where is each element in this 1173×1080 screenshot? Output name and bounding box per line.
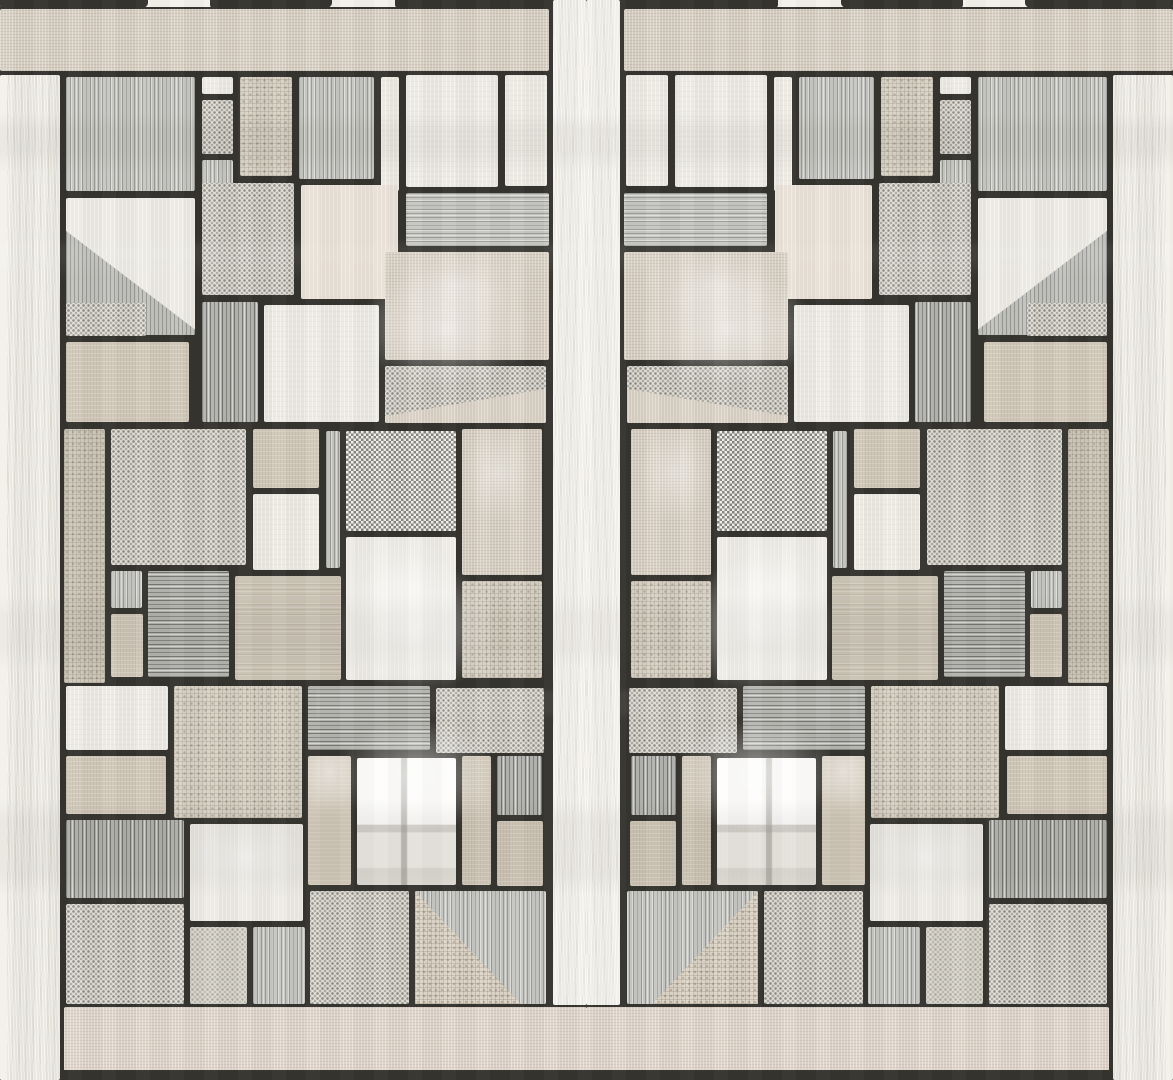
fabric-patch-white [505,75,547,186]
fabric-patch-linen [0,9,549,71]
fabric-patch-taupeGlow [822,756,865,885]
fabric-patch-gvert [253,927,305,1004]
fabric-patch-whitewarm [301,185,398,299]
fabric-patch-dot [764,891,863,1004]
fabric-patch-white [675,75,767,187]
fabric-patch-dot [989,904,1107,1004]
fabric-patch-gvertD [497,756,542,815]
fabric-patch-taupe2 [235,576,341,680]
fabric-patch-taupe [66,756,166,814]
fabric-patch-taupe [1030,614,1062,677]
fabric-patch-burlap2 [64,429,105,683]
fabric-patch-dot [629,688,737,753]
fabric-patch-white [253,494,319,570]
fabric-patch-ghorizD [148,571,229,677]
fabric-patch-white [66,686,168,750]
fabric-patch-taupe [630,821,676,886]
curtain-fabric-photo [0,0,1173,1080]
fabric-patch-pinklinen [64,1007,587,1071]
fabric-patch-dot [202,100,233,154]
fabric-patch-whiteGlow [346,537,456,680]
fabric-patch-linenGlow [624,252,788,360]
fabric-patch-burlap [871,686,999,818]
fabric-patch-gvertD [631,756,676,815]
fabric-patch-seam [0,0,148,9]
fabric-patch-taupe [253,429,319,488]
fabric-patch-white [854,494,920,570]
fabric-patch-taupe [854,429,920,488]
fabric-patch-gauzeB [586,0,620,1005]
fabric-patch-burlap [631,581,711,678]
fabric-patch-dot [1027,303,1107,336]
fabric-patch-linenGlow [385,252,549,360]
fabric-patch-white [202,77,233,94]
fabric-patch-burlap [240,77,292,176]
fabric-patch-dotlight [190,927,247,1004]
fabric-patch-gvert [868,927,920,1004]
fabric-patch-taupe [462,756,491,885]
fabric-patch-dot [111,429,246,565]
fabric-patch-gvert [1031,571,1062,608]
fabric-patch-linenGlow [462,429,542,575]
fabric-patch-taupe [111,614,143,677]
fabric-patch-ghorizD [944,571,1025,677]
fabric-patch-seam [210,0,332,9]
curtain-half-right [586,0,1173,1080]
fabric-patch-dotlight [926,927,983,1004]
fabric-patch-dotdiag [385,366,546,423]
fabric-patch-white [406,75,498,187]
fabric-patch-dotdiag [627,366,788,423]
fabric-patch-taupeGlow [308,756,351,885]
fabric-patch-dot [66,904,184,1004]
fabric-patch-seam [62,1070,587,1080]
fabric-patch-gvert [66,77,195,191]
fabric-patch-ghorizD [743,686,865,750]
fabric-patch-seam [622,0,778,9]
fabric-patch-taupe [1007,756,1107,814]
fabric-patch-seam [586,1070,1111,1080]
fabric-patch-whiteflat [0,75,7,1080]
fabric-patch-seam [395,0,551,9]
fabric-patch-whiteGlow [717,537,827,680]
fabric-patch-white [794,305,909,422]
fabric-patch-burlap [174,686,302,818]
fabric-patch-taupe [984,342,1107,422]
fabric-patch-linenGlow [631,429,711,575]
fabric-patch-whiteGlow [870,824,983,921]
fabric-patch-white [626,75,668,186]
fabric-patch-dot [202,183,294,295]
fabric-patch-gvert [799,77,874,179]
fabric-patch-gvert [833,431,847,568]
fabric-patch-whitewarm [775,185,872,299]
fabric-patch-dot [940,100,971,154]
fabric-patch-dot [66,303,146,336]
fabric-patch-burlap [881,77,933,176]
fabric-patch-gvert [299,77,374,179]
curtain-half-left [0,0,587,1080]
fabric-patch-seam [1025,0,1173,9]
fabric-patch-gvertD [66,820,184,898]
fabric-patch-ghoriz [624,193,767,246]
fabric-patch-gvert [978,77,1107,191]
fabric-patch-burlap [462,581,542,678]
fabric-patch-seam [841,0,963,9]
fabric-patch-taupe2 [832,576,938,680]
fabric-patch-ghorizD [308,686,430,750]
fabric-patch-white [264,305,379,422]
fabric-patch-gvertD [915,302,971,422]
fabric-patch-white [1005,686,1107,750]
fabric-patch-ghoriz [406,193,549,246]
fabric-patch-windowW [717,758,816,885]
fabric-patch-taupe [66,342,189,422]
fabric-patch-white [381,77,399,191]
fabric-patch-linen [624,9,1173,71]
fabric-patch-white [774,77,792,191]
fabric-patch-gvertD [202,302,258,422]
fabric-patch-dot [310,891,409,1004]
fabric-patch-checker [717,431,827,531]
fabric-patch-windowW [357,758,456,885]
fabric-patch-whiteflat [1166,75,1173,1080]
fabric-patch-gvert [111,571,142,608]
fabric-patch-whiteGlow [190,824,303,921]
fabric-patch-gvertD [989,820,1107,898]
fabric-patch-pinklinen [586,1007,1109,1071]
fabric-patch-gvert [326,431,340,568]
fabric-patch-burlap2 [1068,429,1109,683]
fabric-patch-gauze [0,75,60,1080]
fabric-patch-dot [879,183,971,295]
fabric-patch-white [940,77,971,94]
fabric-patch-gauze [1113,75,1173,1080]
fabric-patch-dot [927,429,1062,565]
fabric-patch-gauzeB [553,0,587,1005]
fabric-patch-taupe [682,756,711,885]
fabric-patch-taupe [497,821,543,886]
fabric-patch-dot [436,688,544,753]
fabric-patch-checker [346,431,456,531]
